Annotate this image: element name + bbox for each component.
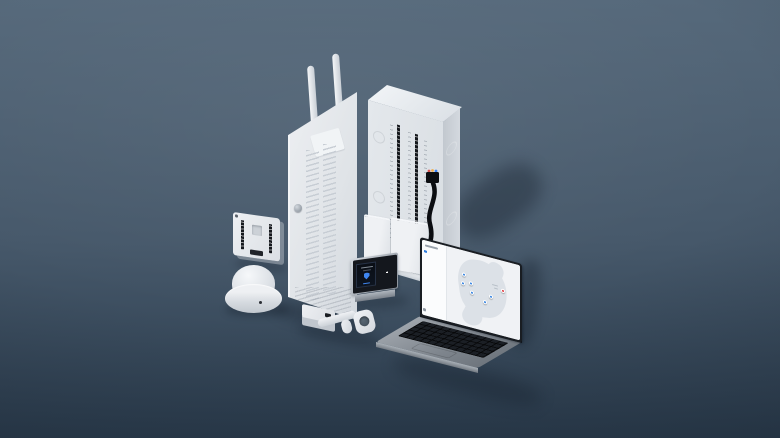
keypad-screen-text-line bbox=[363, 269, 371, 271]
module-led bbox=[235, 214, 238, 217]
io-expansion-module bbox=[233, 212, 280, 262]
map-pin bbox=[470, 290, 474, 295]
knockout-circle bbox=[446, 138, 457, 158]
keypad-status-line bbox=[363, 282, 370, 284]
keypad-screen bbox=[356, 261, 376, 288]
knockout-circle bbox=[373, 189, 385, 205]
map-pin bbox=[462, 272, 466, 277]
wiring-cable bbox=[418, 168, 446, 244]
ring-sensor-hole bbox=[358, 315, 370, 327]
map-pin bbox=[469, 281, 473, 286]
knockout-circle bbox=[373, 129, 385, 145]
map-pin bbox=[489, 294, 493, 299]
module-cutout bbox=[252, 225, 262, 236]
key-dot bbox=[386, 271, 388, 273]
keypad-screen-text-line bbox=[361, 265, 373, 268]
map-pin bbox=[461, 281, 465, 286]
door-lock bbox=[294, 204, 302, 212]
product-scene bbox=[0, 0, 780, 438]
map-pin bbox=[483, 300, 487, 305]
dome-sounder-base bbox=[225, 284, 282, 313]
door-vent-column bbox=[323, 144, 336, 294]
shield-icon bbox=[364, 272, 370, 280]
door-vent-column bbox=[306, 150, 319, 300]
dome-sounder-led bbox=[259, 301, 262, 304]
module-terminal-left bbox=[238, 218, 247, 252]
module-terminal-right bbox=[266, 222, 275, 256]
map-pin bbox=[501, 288, 505, 293]
keypad-face bbox=[353, 254, 397, 293]
alarm-keypad bbox=[351, 252, 398, 295]
keypad-keys bbox=[379, 260, 396, 284]
module-connector bbox=[250, 249, 263, 256]
knockout-circle bbox=[446, 208, 457, 228]
